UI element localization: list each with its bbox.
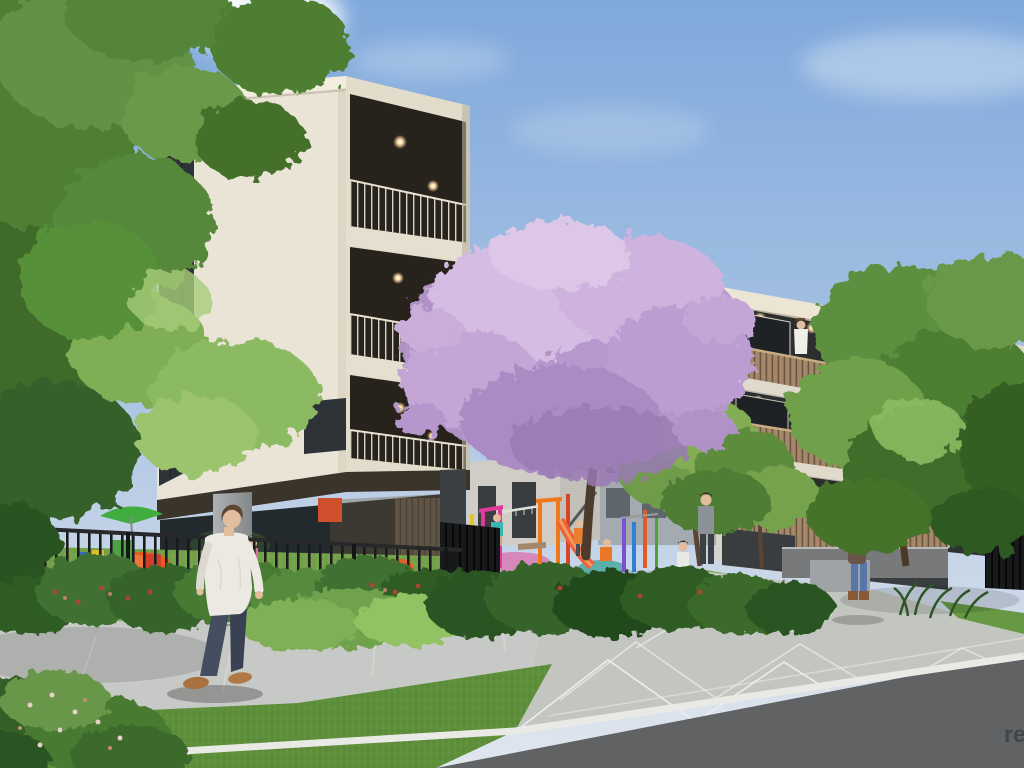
- render-image: re: [0, 0, 1024, 768]
- watermark-text: re: [1004, 721, 1024, 747]
- scene-canvas: re: [0, 0, 1024, 768]
